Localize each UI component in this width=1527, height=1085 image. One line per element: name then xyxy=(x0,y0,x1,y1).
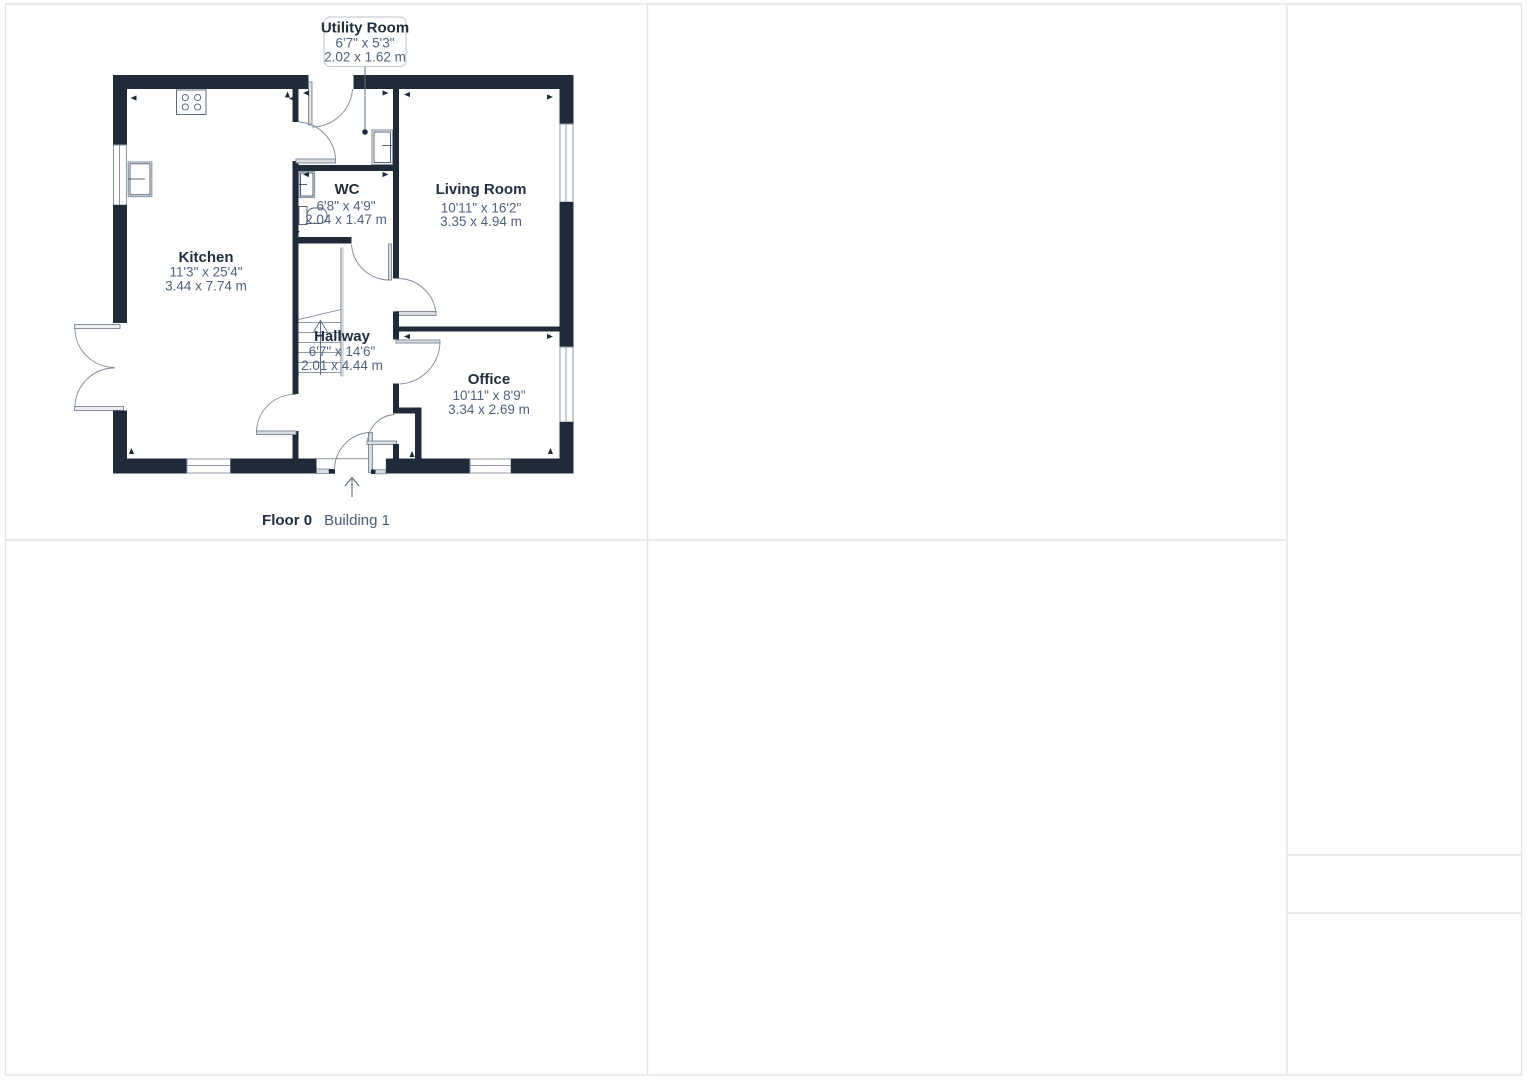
svg-text:3.35 x 4.94 m: 3.35 x 4.94 m xyxy=(440,214,522,229)
svg-text:11'3" x 25'4": 11'3" x 25'4" xyxy=(169,265,242,280)
svg-text:Living Room: Living Room xyxy=(436,181,527,198)
svg-text:2.02 x 1.62 m: 2.02 x 1.62 m xyxy=(324,50,406,65)
svg-text:6'7" x 14'6": 6'7" x 14'6" xyxy=(309,344,376,359)
svg-text:3.44 x 7.74 m: 3.44 x 7.74 m xyxy=(165,279,247,294)
svg-text:10'11" x 8'9": 10'11" x 8'9" xyxy=(452,388,525,403)
svg-text:2.04 x 1.47 m: 2.04 x 1.47 m xyxy=(305,212,387,227)
svg-text:3.34 x 2.69 m: 3.34 x 2.69 m xyxy=(448,402,530,417)
svg-text:2.01 x 4.44 m: 2.01 x 4.44 m xyxy=(301,358,383,373)
svg-text:Floor 0Building 1: Floor 0Building 1 xyxy=(262,512,390,529)
svg-text:Kitchen: Kitchen xyxy=(178,249,233,266)
svg-text:6'7" x 5'3": 6'7" x 5'3" xyxy=(335,36,394,51)
svg-text:Hallway: Hallway xyxy=(314,328,371,345)
svg-text:Office: Office xyxy=(468,371,511,388)
svg-text:WC: WC xyxy=(335,181,360,198)
svg-text:Utility Room: Utility Room xyxy=(321,20,409,37)
